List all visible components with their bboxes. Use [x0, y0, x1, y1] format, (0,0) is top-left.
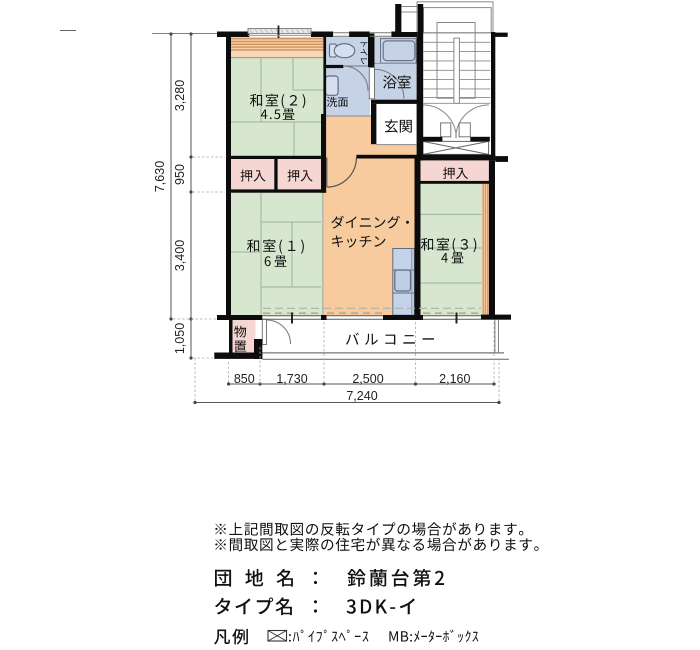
svg-text:2,500: 2,500	[352, 372, 383, 386]
svg-text:3,400: 3,400	[173, 240, 187, 271]
svg-text:3,280: 3,280	[173, 80, 187, 111]
svg-text:2,160: 2,160	[439, 372, 470, 386]
svg-text:7,240: 7,240	[346, 389, 377, 403]
svg-text:850: 850	[234, 372, 255, 386]
svg-text:950: 950	[173, 164, 187, 185]
svg-text:7,630: 7,630	[153, 161, 167, 192]
svg-text:1,050: 1,050	[173, 323, 187, 354]
svg-text:1,730: 1,730	[276, 372, 307, 386]
